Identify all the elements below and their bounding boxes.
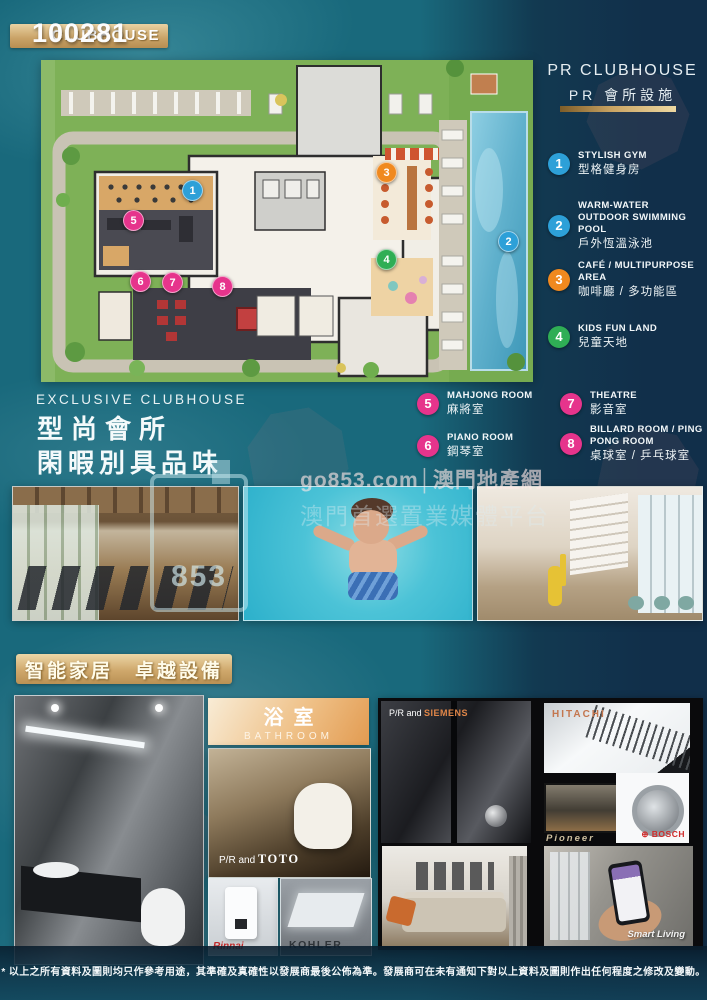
legend-item-kids: 4 KIDS FUN LAND 兒童天地	[548, 323, 698, 350]
panel-title-en: PR CLUBHOUSE	[540, 62, 705, 80]
clubhouse-floor-plan: 1 2 3 4 5 6 7 8	[41, 60, 533, 382]
pioneer-brand: Pioneer	[546, 833, 595, 844]
siemens-brand-label: P/R and SIEMENS	[389, 708, 468, 718]
legend-label-en: CAFÉ / MULTIPURPOSE AREA	[578, 260, 698, 284]
legend-label-zh: 型格健身房	[578, 163, 647, 177]
plan-marker-4: 4	[376, 249, 397, 270]
legend-number-badge: 5	[417, 393, 439, 415]
legend-item-pool: 2 WARM-WATER OUTDOOR SWIMMING POOL 戶外恆溫泳…	[548, 200, 700, 251]
legend-label-zh: 麻將室	[447, 403, 533, 417]
plan-marker-7: 7	[162, 272, 183, 293]
legend-item-piano: 6 PIANO ROOM 鋼琴室	[417, 432, 557, 459]
pioneer-tv-photo	[544, 783, 618, 833]
hitachi-ac-photo: HITACHI	[544, 703, 690, 773]
photo-detail	[287, 893, 364, 927]
toto-toilet-photo: P/R and TOTO	[208, 748, 371, 878]
hitachi-brand: HITACHI	[552, 709, 606, 720]
legend-item-gym: 1 STYLISH GYM 型格健身房	[548, 150, 698, 177]
logo-853-text: 853	[154, 560, 244, 594]
living-room-photo	[382, 846, 527, 946]
bosch-washer-photo: ⊕ BOSCH	[616, 773, 689, 843]
legend-label-en: BILLARD ROOM / PING PONG ROOM	[590, 424, 705, 448]
legend-item-cafe: 3 CAFÉ / MULTIPURPOSE AREA 咖啡廳 / 多功能區	[548, 260, 698, 299]
toto-brand: TOTO	[258, 852, 300, 866]
legend-number-badge: 4	[548, 326, 570, 348]
photo-detail	[550, 852, 590, 940]
photo-detail	[451, 701, 457, 843]
disclaimer-text: * 以上之所有資料及圖則均只作參考用途，其準確及真確性以發展商最後公佈為準。發展…	[0, 963, 707, 978]
bosch-logo-icon: ⊕	[641, 829, 651, 839]
legend-label-zh: 兒童天地	[578, 336, 657, 350]
legend-label-zh: 影音室	[590, 403, 637, 417]
photo-detail	[235, 919, 247, 929]
photo-detail	[485, 805, 507, 827]
legend-label-en: MAHJONG ROOM	[447, 390, 533, 402]
legend-number-badge: 1	[548, 153, 570, 175]
siemens-brand: SIEMENS	[424, 708, 468, 718]
bosch-brand: BOSCH	[652, 829, 685, 839]
plan-marker-2: 2	[498, 231, 519, 252]
smart-living-label: Smart Living	[627, 929, 685, 940]
bathroom-photo	[14, 695, 204, 965]
plan-marker-8: 8	[212, 276, 233, 297]
toto-brand-label: P/R and TOTO	[219, 852, 300, 867]
clubhouse-heading-en: EXCLUSIVE CLUBHOUSE	[36, 392, 247, 407]
clubhouse-heading-zh1: 型尚會所	[37, 409, 173, 446]
legend-number-badge: 7	[560, 393, 582, 415]
legend-label-en: PIANO ROOM	[447, 432, 513, 444]
gold-divider	[560, 106, 676, 112]
legend-item-billiard: 8 BILLARD ROOM / PING PONG ROOM 桌球室 / 乒乓…	[560, 424, 705, 463]
smart-living-photo: Smart Living	[544, 846, 693, 946]
legend-number-badge: 2	[548, 215, 570, 237]
photo-detail	[402, 898, 506, 932]
siemens-fridge-photo: P/R and SIEMENS	[381, 701, 531, 843]
bosch-brand-label: ⊕ BOSCH	[641, 829, 685, 840]
legend-label-en: KIDS FUN LAND	[578, 323, 657, 335]
legend-number-badge: 8	[560, 433, 582, 455]
photo-detail	[294, 783, 352, 849]
photo-detail	[51, 704, 59, 712]
legend-number-badge: 6	[417, 435, 439, 457]
brand-prefix: P/R and	[389, 708, 424, 718]
bathroom-title-en: BATHROOM	[244, 731, 333, 742]
plan-marker-3: 3	[376, 162, 397, 183]
floor-plan-drawing	[41, 60, 533, 382]
photo-detail	[348, 572, 398, 600]
plan-marker-6: 6	[130, 271, 151, 292]
watermark-tagline: 澳門首選置業媒體平台	[300, 497, 640, 531]
legend-number-badge: 3	[548, 269, 570, 291]
bathroom-title-panel: 浴室 BATHROOM	[208, 698, 369, 745]
photo-detail	[654, 596, 670, 610]
photo-detail	[509, 856, 527, 946]
legend-item-theatre: 7 THEATRE 影音室	[560, 390, 700, 417]
legend-label-zh: 鋼琴室	[447, 445, 513, 459]
legend-label-en: WARM-WATER OUTDOOR SWIMMING POOL	[578, 200, 700, 236]
logo-chimney-shape	[212, 460, 230, 484]
giraffe-toy-shape	[548, 566, 562, 606]
legend-label-zh: 桌球室 / 乒乓球室	[590, 449, 705, 463]
photo-detail	[638, 495, 702, 613]
bathroom-title-zh: 浴室	[254, 701, 324, 730]
go853-logo-watermark: 853	[150, 474, 248, 612]
photo-detail	[141, 888, 185, 946]
photo-detail	[225, 887, 257, 939]
legend-label-en: THEATRE	[590, 390, 637, 402]
panel-title-zh: PR 會所設施	[540, 85, 705, 105]
photo-detail	[628, 596, 644, 610]
rinnai-heater-photo: Rinnai	[208, 878, 278, 956]
smart-home-banner: 智能家居 卓越設備	[16, 654, 232, 684]
photo-detail	[678, 596, 694, 610]
listing-id: 100281	[32, 18, 128, 49]
plan-marker-5: 5	[123, 210, 144, 231]
legend-label-en: STYLISH GYM	[578, 150, 647, 162]
photo-detail	[611, 864, 647, 922]
appliance-collage: P/R and SIEMENS HITACHI ⊕ BOSCH Smart Li…	[378, 698, 703, 950]
kohler-light-photo: KOHLER	[280, 878, 372, 956]
legend-label-zh: 戶外恆溫泳池	[578, 237, 700, 251]
listing-badge: CLUBHOUSE 100281	[10, 24, 168, 48]
brand-prefix: P/R and	[219, 855, 258, 866]
brochure-page: CLUBHOUSE 100281	[0, 0, 707, 1000]
legend-label-zh: 咖啡廳 / 多功能區	[578, 285, 698, 299]
plan-marker-1: 1	[182, 180, 203, 201]
legend-item-mahjong: 5 MAHJONG ROOM 麻將室	[417, 390, 557, 417]
watermark-site-name: go853.com│澳門地產網	[300, 464, 620, 494]
photo-detail	[416, 862, 494, 890]
photo-detail	[33, 862, 79, 878]
photo-detail	[25, 726, 145, 749]
photo-detail	[155, 704, 163, 712]
